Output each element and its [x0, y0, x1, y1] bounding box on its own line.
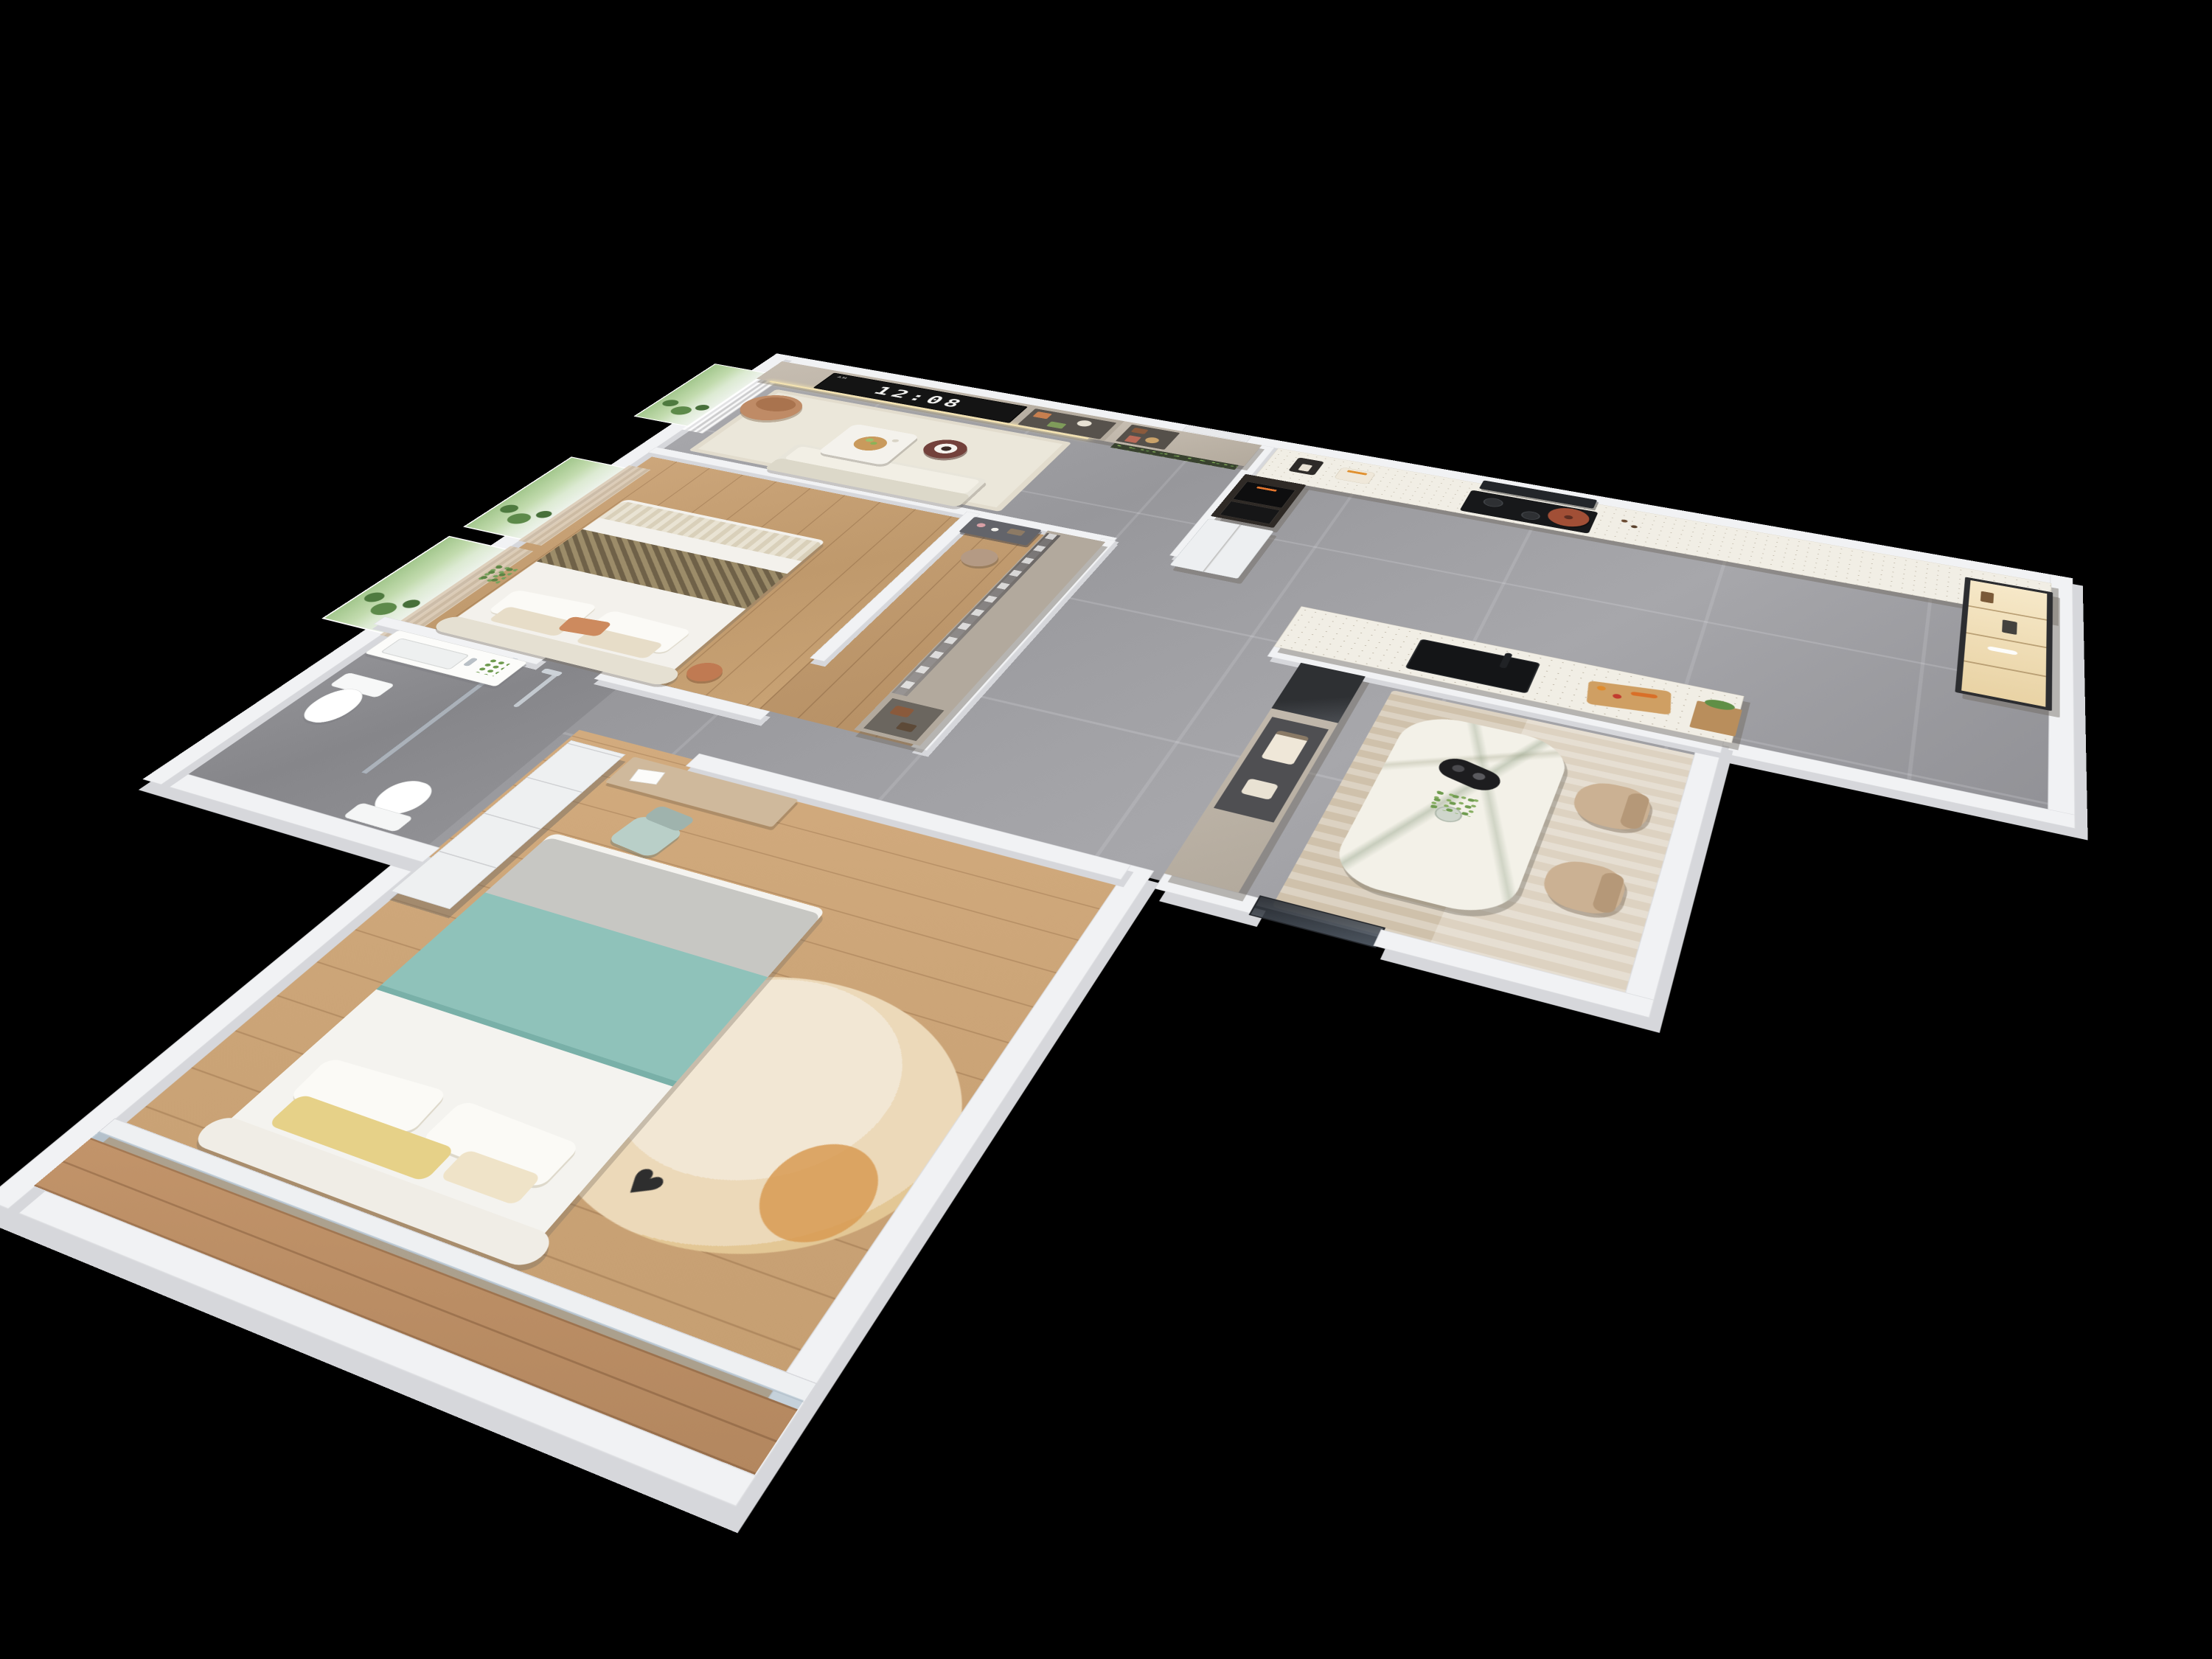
glass-display-cabinet[interactable] [1955, 577, 2053, 711]
cabinet-shelf-2 [1966, 632, 2047, 648]
shelf-books [1032, 411, 1052, 419]
white-vase [990, 527, 1000, 532]
pot-lid-knob [1563, 515, 1573, 520]
tray-glass-2 [1470, 771, 1487, 781]
toast-slices [1347, 470, 1368, 475]
veg-pepper-red [1613, 694, 1622, 700]
oven-display [1256, 487, 1277, 492]
burner-2 [1520, 510, 1542, 521]
armchair-seat [749, 395, 802, 414]
apartment-floorplan: ♥ AM 12:08 [0, 353, 2085, 1659]
cosmetics-tray [1006, 529, 1026, 536]
coffee-maker-cup [1298, 464, 1312, 472]
serving-tray [1432, 754, 1507, 794]
veg-pepper-orange [1597, 686, 1606, 692]
pink-vase [975, 523, 987, 528]
handbag [1131, 428, 1149, 434]
tray-glass-1 [1450, 764, 1467, 773]
burner-1 [1481, 497, 1505, 509]
cabinet-shelf-1 [1969, 605, 2047, 621]
pantry-jar-2 [2002, 619, 2017, 635]
plate-stack [1987, 646, 2017, 655]
shelf-bowl [1075, 420, 1094, 428]
vanity-plant [474, 658, 512, 676]
shelf-handbag [889, 706, 915, 718]
vanity-faucet [462, 658, 478, 667]
shelf-plant-box [1046, 421, 1067, 428]
niche-toaster[interactable] [1240, 778, 1279, 800]
open-book [629, 769, 665, 785]
baseball-cap [1143, 437, 1161, 444]
sink-faucet [1499, 653, 1513, 669]
niche-coffee-machine[interactable] [1261, 730, 1310, 765]
shelf-handbag-2 [895, 722, 917, 732]
pantry-jar-1 [1980, 591, 1994, 604]
art-print [1124, 435, 1141, 443]
rug-heart-motif: ♥ [609, 1160, 676, 1209]
glass-cup [891, 439, 900, 442]
plant-sprigs [1425, 788, 1480, 818]
cabinet-lit-interior [1961, 580, 2047, 707]
cabinet-shelf-3 [1964, 660, 2045, 677]
scene-background: ♥ AM 12:08 [0, 0, 2212, 1659]
veg-carrots [1631, 692, 1658, 699]
